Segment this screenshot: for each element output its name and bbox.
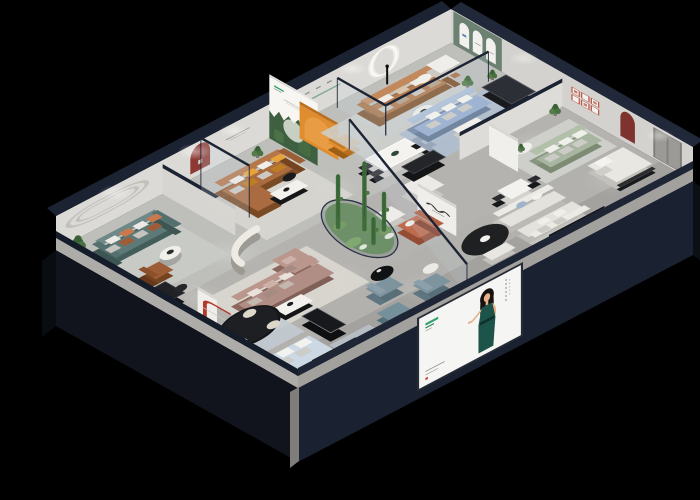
spotlight [509, 51, 538, 65]
showroom-scene: Isometric 3D cutaway render of a furnitu… [0, 0, 700, 500]
spotlight [98, 185, 132, 201]
sw-exterior-bevel [42, 250, 56, 337]
corner-column [290, 387, 299, 468]
spotlight [219, 124, 248, 138]
e-exterior-bevel [693, 181, 700, 265]
spotlight [644, 129, 673, 143]
spotlight [338, 62, 367, 76]
showroom-render-svg: Isometric 3D cutaway render of a furnitu… [0, 0, 700, 500]
